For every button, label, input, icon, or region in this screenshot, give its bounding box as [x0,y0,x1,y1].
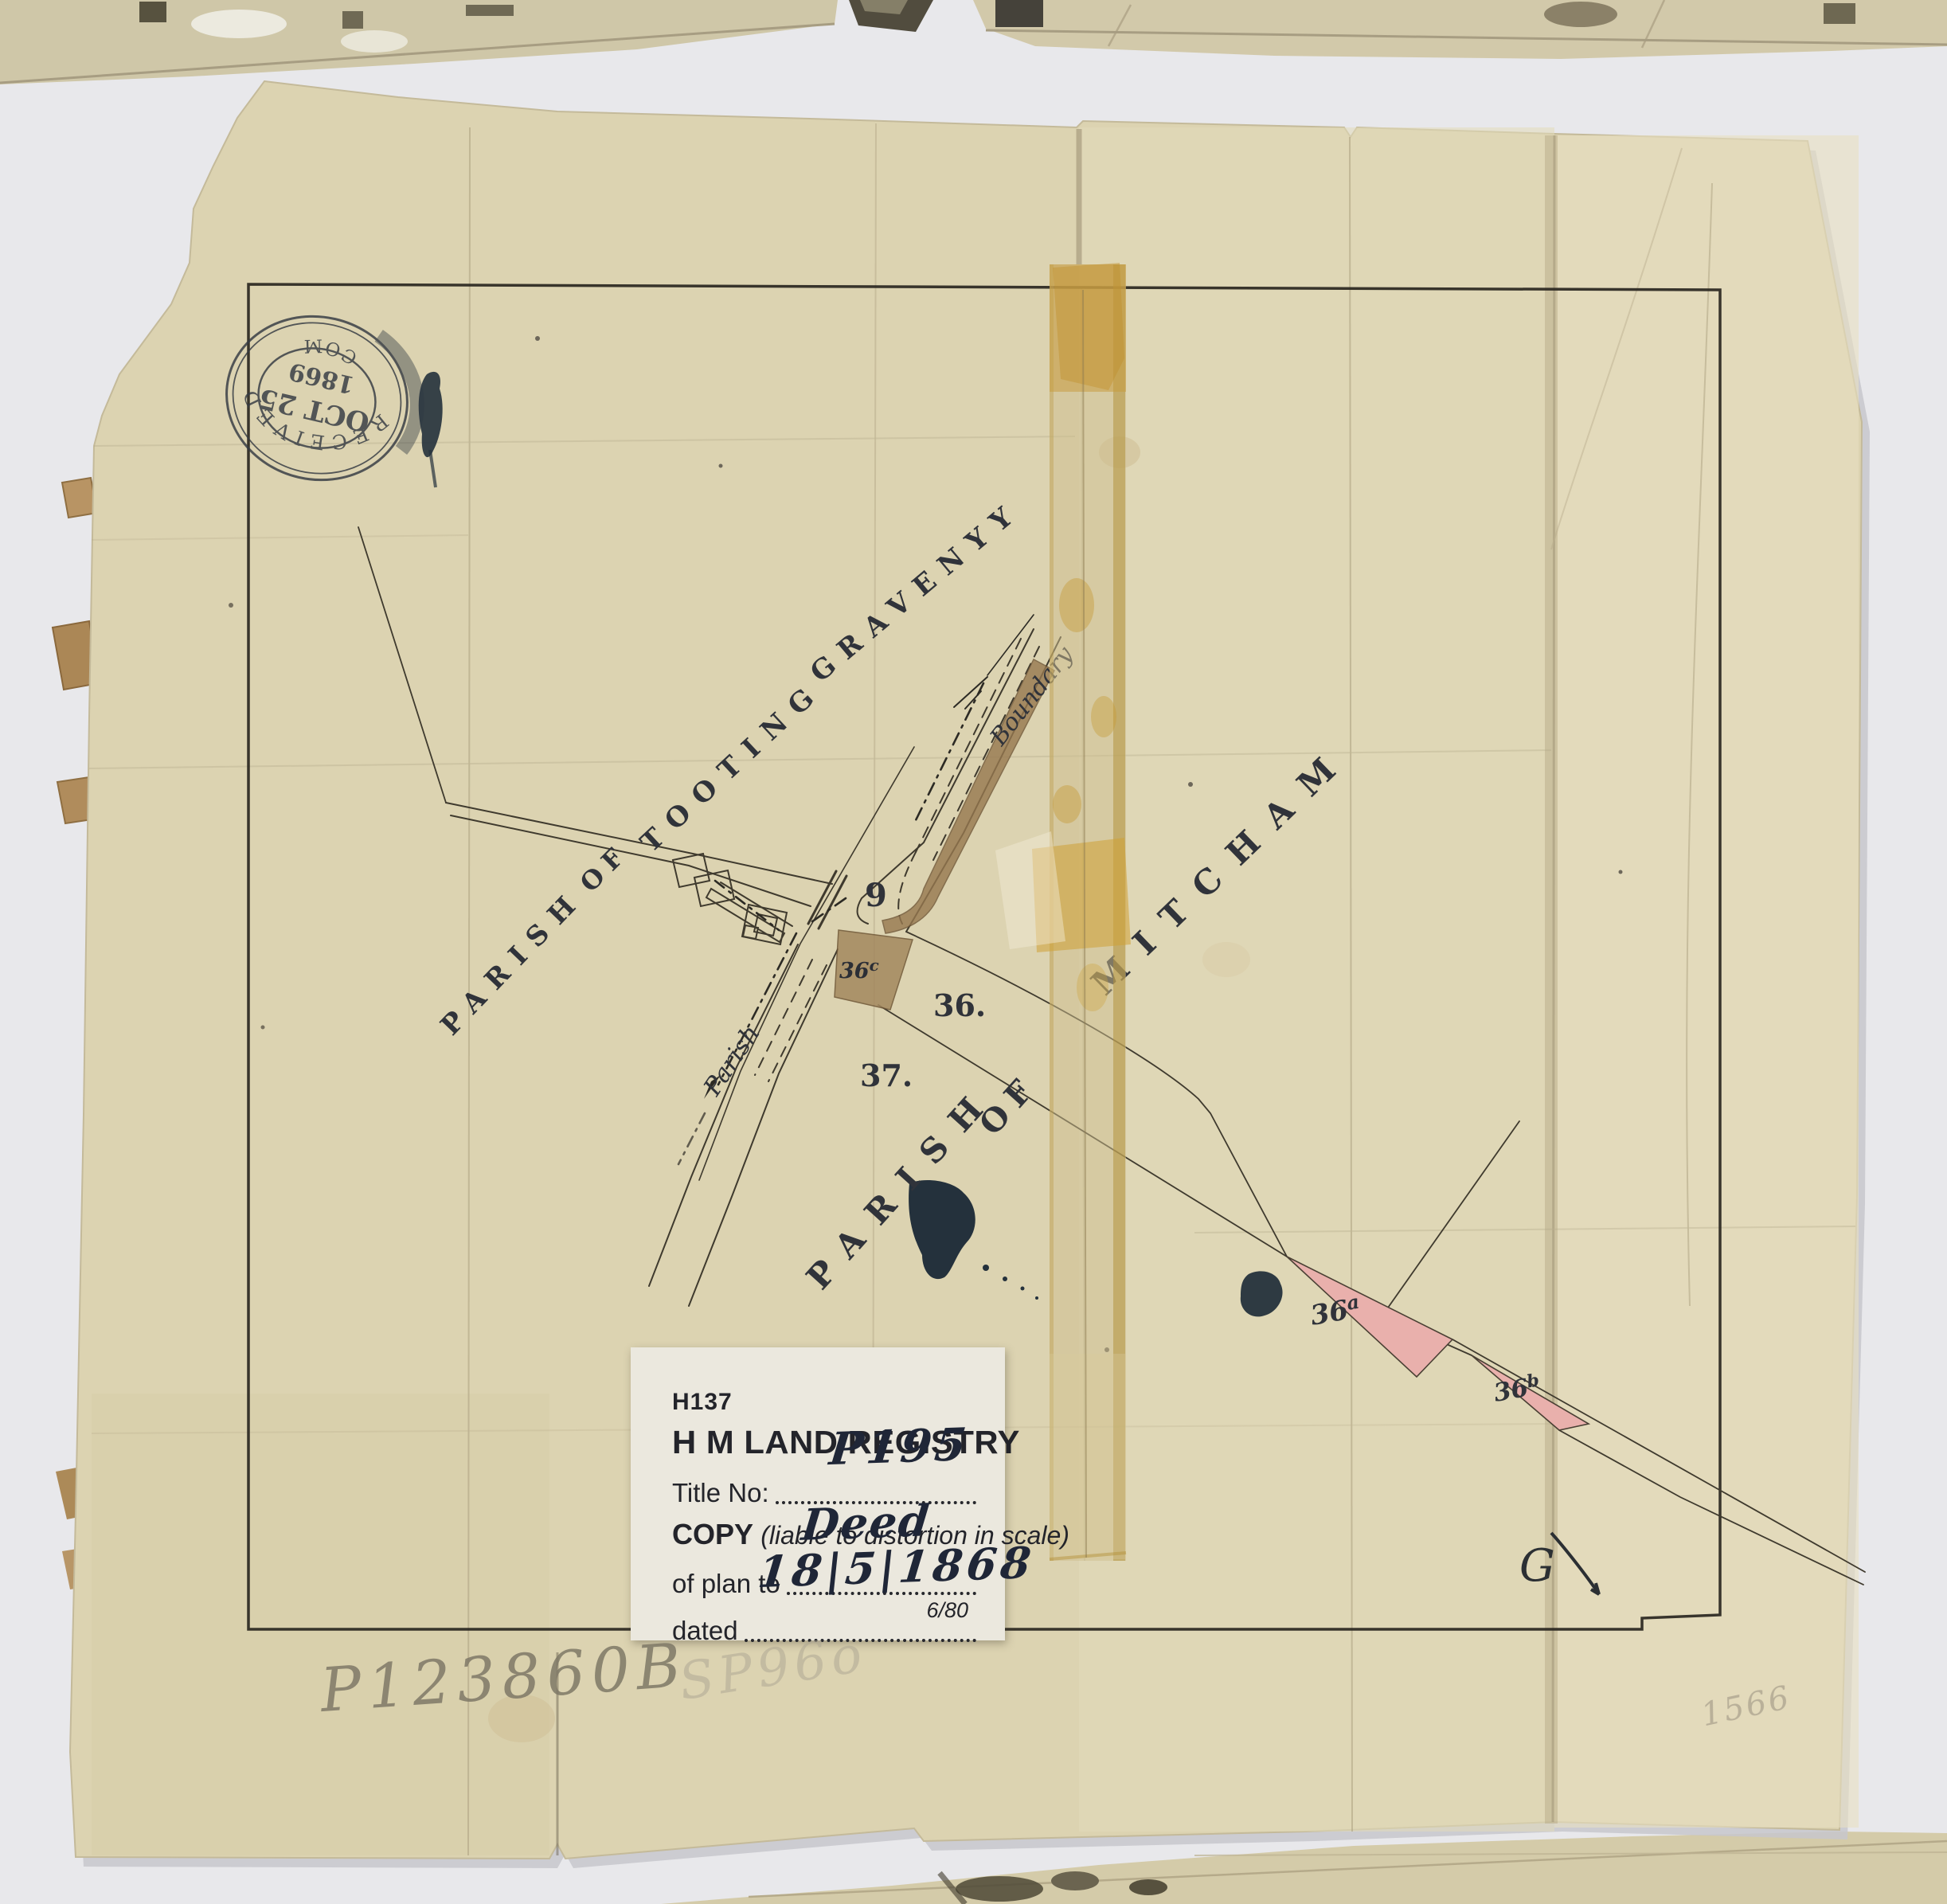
parcel-36c-sup: c [870,956,879,975]
label-title-no-caption: Title No: [672,1478,769,1508]
top-center-dark-fragment [849,0,933,32]
parcel-36c-base: 36 [839,959,870,983]
right-panel-tone [1554,135,1859,1828]
parcel-36a-base: 36 [1308,1294,1351,1332]
parcel-37-label: 37. [860,1058,913,1093]
ink-initial-g: G [1519,1540,1555,1592]
handwritten-title-no: P195 [827,1418,972,1476]
top-right-document-strip [973,0,1947,59]
center-panel-tone [1079,127,1554,1832]
land-registry-label: H137 H M LAND REGISTRY Title No: COPY (l… [631,1347,1005,1640]
parcel-36-label: 36. [933,987,986,1023]
label-form-number: H137 [672,1389,976,1416]
bottom-left-tone [92,1394,549,1855]
top-left-document-strip [0,0,838,84]
label-copy-caption: COPY [672,1518,753,1550]
parcel-9-label: 9 [865,877,887,914]
parcel-36b-base: 36 [1492,1374,1531,1408]
scanned-deed-plan-page: PARISH OF TOOTING GRAVENYY PARISH OF MIT… [0,0,1947,1904]
handwritten-date: 18|5|1868 [756,1537,1038,1597]
label-print-code: 6/80 [926,1598,968,1623]
